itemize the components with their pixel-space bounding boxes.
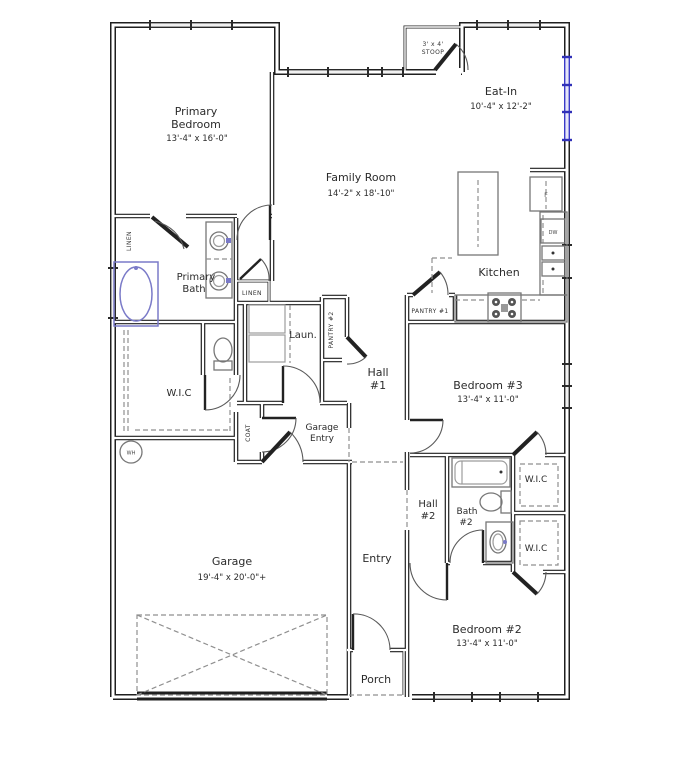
wic-lower-door [513, 572, 546, 594]
label-hall2: Hall [418, 499, 437, 510]
label-stoop-dims: 3' x 4' [422, 41, 443, 48]
label-bath2: Bath [457, 507, 478, 517]
label-garage-entry: Garage [306, 423, 339, 433]
pantry2-door [347, 337, 366, 364]
label-stoop: STOOP [422, 49, 445, 56]
label-eat-in: Eat-In [485, 85, 517, 98]
label-kitchen: Kitchen [478, 266, 519, 279]
primary-bedroom-door [237, 205, 272, 240]
label-wic-primary: W.I.C [166, 388, 191, 399]
label-linen-hall: LINEN [242, 290, 262, 297]
stove [488, 293, 521, 322]
sink-faucet-icon [226, 238, 231, 243]
label-bedroom3: Bedroom #3 [453, 379, 522, 392]
window-primary-bedroom [150, 20, 232, 30]
label-hall1: Hall [367, 366, 388, 379]
linen-closet-door [240, 259, 269, 281]
wic-upper-door [513, 432, 546, 455]
window-eat-in-blue [562, 57, 572, 140]
dims-garage: 19'-4" x 20'-0"+ [198, 573, 267, 583]
sink-faucet-icon [226, 278, 231, 283]
label-garage: Garage [212, 555, 253, 568]
label-family-room: Family Room [326, 171, 396, 184]
bedroom2-door [410, 563, 447, 600]
bedroom3-door [410, 420, 443, 453]
pantry1-door [413, 272, 448, 295]
label-laundry: Laun. [289, 330, 317, 341]
window-family-room-2 [382, 67, 403, 77]
laundry-door [283, 366, 320, 403]
front-door [353, 614, 390, 650]
primary-bath-door [152, 217, 188, 249]
label-coat: COAT [245, 424, 252, 442]
fixtures [114, 172, 567, 563]
primary-tub [114, 262, 158, 326]
label-primary-bath: Primary [177, 272, 216, 283]
label-pantry2: PANTRY #2 [328, 311, 335, 348]
primary-vanity [206, 222, 232, 298]
sink-faucet-icon [503, 540, 507, 544]
window-bedroom3 [562, 364, 572, 408]
coat-closet-door [262, 418, 296, 452]
label-primary-bath-2: Bath [182, 284, 205, 295]
kitchen-sink [542, 246, 565, 276]
label-fridge: F [544, 191, 548, 199]
window-family-room [288, 67, 368, 77]
label-water-heater: WH [127, 451, 136, 457]
dims-bedroom3: 13'-4" x 11'-0" [457, 395, 519, 405]
floor-plan: Primary Bedroom 13'-4" x 16'-0" Family R… [0, 0, 688, 768]
label-hall1-2: #1 [370, 379, 386, 392]
window-bedroom2-left [434, 692, 472, 702]
label-wic-upper: W.I.C [525, 475, 548, 485]
bath2-toilet [480, 491, 511, 513]
bath2-tub [452, 458, 510, 487]
floor-plan-page: Primary Bedroom 13'-4" x 16'-0" Family R… [0, 0, 688, 768]
label-garage-entry-2: Entry [310, 434, 335, 444]
label-pantry1: PANTRY #1 [411, 308, 448, 315]
garage-entry-door [262, 432, 303, 462]
label-porch: Porch [361, 673, 391, 686]
water-closet-door [205, 375, 240, 410]
dims-family-room: 14'-2" x 18'-10" [328, 189, 395, 199]
dims-bedroom2: 13'-4" x 11'-0" [456, 639, 518, 649]
label-wic-lower: W.I.C [525, 544, 548, 554]
label-linen-bath: LINEN [126, 231, 133, 251]
dims-primary-bedroom: 13'-4" x 16'-0" [166, 134, 228, 144]
washer-dryer [249, 305, 285, 362]
label-dishwasher: DW [549, 230, 558, 236]
label-bedroom2: Bedroom #2 [452, 623, 521, 636]
tub-faucet [134, 266, 138, 270]
window-bedroom2-right [500, 692, 538, 702]
bath2-door [450, 530, 483, 563]
wic-lower-shelving [520, 521, 558, 565]
dims-eat-in: 10'-4" x 12'-2" [470, 102, 532, 112]
garage-door-outline [137, 615, 327, 695]
wic-upper-shelving [520, 464, 558, 506]
labels: Primary Bedroom 13'-4" x 16'-0" Family R… [126, 41, 557, 686]
label-primary-bedroom: Primary [175, 105, 218, 118]
label-entry: Entry [362, 552, 392, 565]
label-bath2-2: #2 [459, 518, 472, 528]
bath2-vanity [486, 522, 513, 563]
window-eat-in-top [477, 20, 540, 30]
window-primary-tub [108, 268, 118, 318]
label-primary-bedroom-2: Bedroom [171, 118, 221, 131]
label-hall2-2: #2 [421, 511, 436, 522]
primary-toilet [214, 338, 232, 370]
